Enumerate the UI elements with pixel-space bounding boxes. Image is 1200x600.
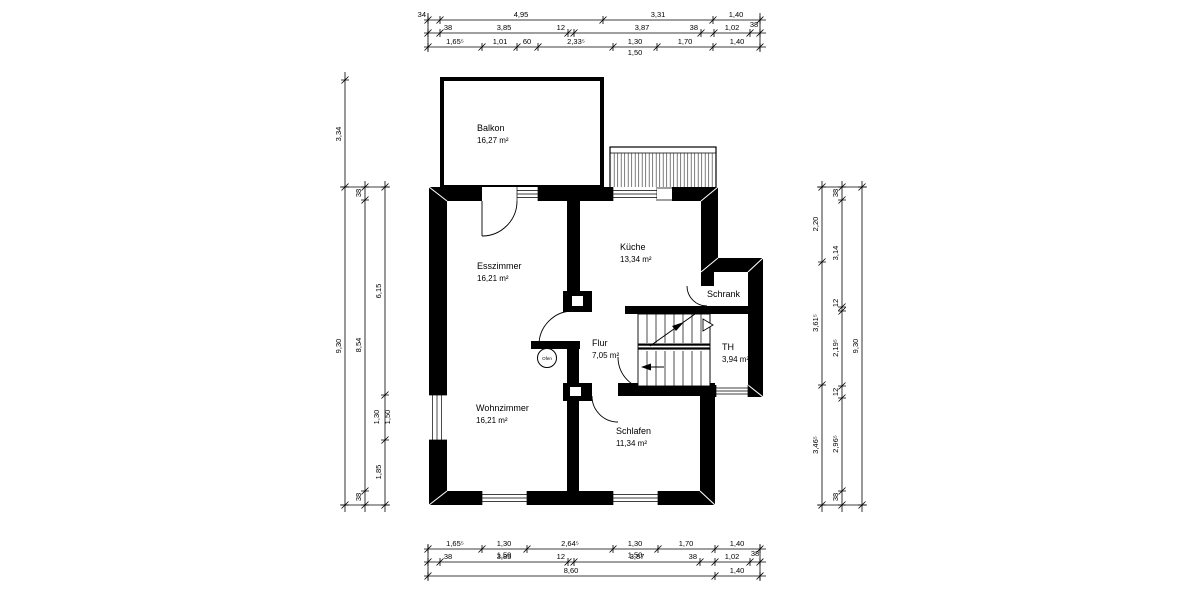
dim-labels-left: 3,34 9,30 38 8,54 38 6,15 1,30 1,50 1,85 xyxy=(334,127,392,501)
dim-label: 38 xyxy=(354,189,363,197)
dim-label: 3,87 xyxy=(635,23,650,32)
dim-label: 1,40 xyxy=(730,37,745,46)
dim-label: 38 xyxy=(750,20,758,29)
room-label-balkon: Balkon xyxy=(477,123,505,133)
dim-label: 1,65⁵ xyxy=(446,539,464,548)
dim-label: 60 xyxy=(523,37,531,46)
terrace-hatched-area xyxy=(610,147,716,190)
dim-label: 3,87 xyxy=(630,552,645,561)
dim-label: 1,50 xyxy=(383,410,392,425)
dim-label: 1,30 xyxy=(628,37,643,46)
dim-label: 38 xyxy=(444,23,452,32)
floor-plan-drawing: Ofen Balkon 16,27 m² Esszimmer 16,21 m² … xyxy=(0,0,1200,600)
room-label-th: TH xyxy=(722,342,734,352)
dim-label: 1,02 xyxy=(725,552,740,561)
dim-label: 38 xyxy=(354,493,363,501)
esszimmer-door xyxy=(539,311,573,345)
dim-label: 2,19⁵ xyxy=(831,339,840,357)
dim-label: 2,20 xyxy=(811,217,820,232)
room-label-esszimmer: Esszimmer xyxy=(477,261,522,271)
dim-label: 8,60 xyxy=(564,566,579,575)
room-area-esszimmer: 16,21 m² xyxy=(477,274,509,283)
ofen-label: Ofen xyxy=(542,356,552,361)
room-label-schlafen: Schlafen xyxy=(616,426,651,436)
dim-label: 1,70 xyxy=(678,37,693,46)
dim-label: 2,96⁵ xyxy=(831,435,840,453)
dim-label: 1,50 xyxy=(628,48,643,57)
room-area-schlafen: 11,34 m² xyxy=(616,439,647,448)
dim-label: 8,54 xyxy=(354,338,363,353)
dim-label: 38 xyxy=(831,493,840,501)
floor-plan-page: Ofen Balkon 16,27 m² Esszimmer 16,21 m² … xyxy=(0,0,1200,600)
stairs xyxy=(638,314,713,386)
room-area-th: 3,94 m² xyxy=(722,355,749,364)
schlafen-door xyxy=(592,396,618,422)
ofen-symbol: Ofen xyxy=(538,349,557,368)
dim-label: 12 xyxy=(557,552,565,561)
dim-label: 38 xyxy=(831,189,840,197)
dim-label: 12 xyxy=(831,299,840,307)
dim-label: 34 xyxy=(418,10,426,19)
dim-label: 1,65⁵ xyxy=(446,37,464,46)
dim-label: 1,40 xyxy=(729,10,744,19)
room-area-kueche: 13,34 m² xyxy=(620,255,652,264)
dim-label: 1,40 xyxy=(730,566,745,575)
dim-label: 12 xyxy=(831,388,840,396)
room-label-wohnzimmer: Wohnzimmer xyxy=(476,403,529,413)
room-label-kueche: Küche xyxy=(620,242,646,252)
dim-label: 3,85 xyxy=(497,23,512,32)
dim-label: 1,30 xyxy=(372,410,381,425)
dim-label: 4,95 xyxy=(514,10,529,19)
room-area-wohnzimmer: 16,21 m² xyxy=(476,416,508,425)
dim-labels-right: 2,20 3,61⁵ 3,46⁵ 38 3,14 12 2,19⁵ 12 2,9… xyxy=(811,189,860,501)
room-label-flur: Flur xyxy=(592,338,608,348)
dim-label: 3,14 xyxy=(831,246,840,261)
room-area-balkon: 16,27 m² xyxy=(477,136,509,145)
balcony-door xyxy=(482,201,517,236)
dim-label: 2,33⁵ xyxy=(567,37,585,46)
dim-labels-bottom: 1,65⁵ 1,30 1,50 2,64⁵ 1,30 1,50 1,70 1,4… xyxy=(444,539,759,575)
dim-label: 38 xyxy=(690,23,698,32)
dim-label: 38 xyxy=(689,552,697,561)
dim-label: 9,30 xyxy=(334,339,343,354)
dim-label: 38 xyxy=(444,552,452,561)
dim-label: 38 xyxy=(751,549,759,558)
dim-label: 1,40 xyxy=(730,539,745,548)
room-area-flur: 7,05 m² xyxy=(592,351,619,360)
dim-label: 2,64⁵ xyxy=(561,539,579,548)
dim-label: 3,46⁵ xyxy=(811,436,820,454)
dim-label: 3,31 xyxy=(651,10,666,19)
balcony-outline xyxy=(442,79,602,187)
dim-label: 1,70 xyxy=(679,539,694,548)
dim-label: 1,30 xyxy=(628,539,643,548)
dim-label: 1,30 xyxy=(497,539,512,548)
dim-label: 12 xyxy=(557,23,565,32)
dim-label: 9,30 xyxy=(851,339,860,354)
dim-label: 1,02 xyxy=(725,23,740,32)
dim-label: 1,01 xyxy=(493,37,508,46)
dim-label: 3,61⁵ xyxy=(811,314,820,332)
room-label-schrank: Schrank xyxy=(707,289,741,299)
dim-labels-top: 34 4,95 3,31 1,40 38 38 3,85 12 3,87 38 … xyxy=(418,10,759,57)
dim-label: 1,85 xyxy=(374,465,383,480)
dim-label: 3,34 xyxy=(334,127,343,142)
dim-label: 3,85 xyxy=(497,552,512,561)
dim-label: 6,15 xyxy=(374,284,383,299)
